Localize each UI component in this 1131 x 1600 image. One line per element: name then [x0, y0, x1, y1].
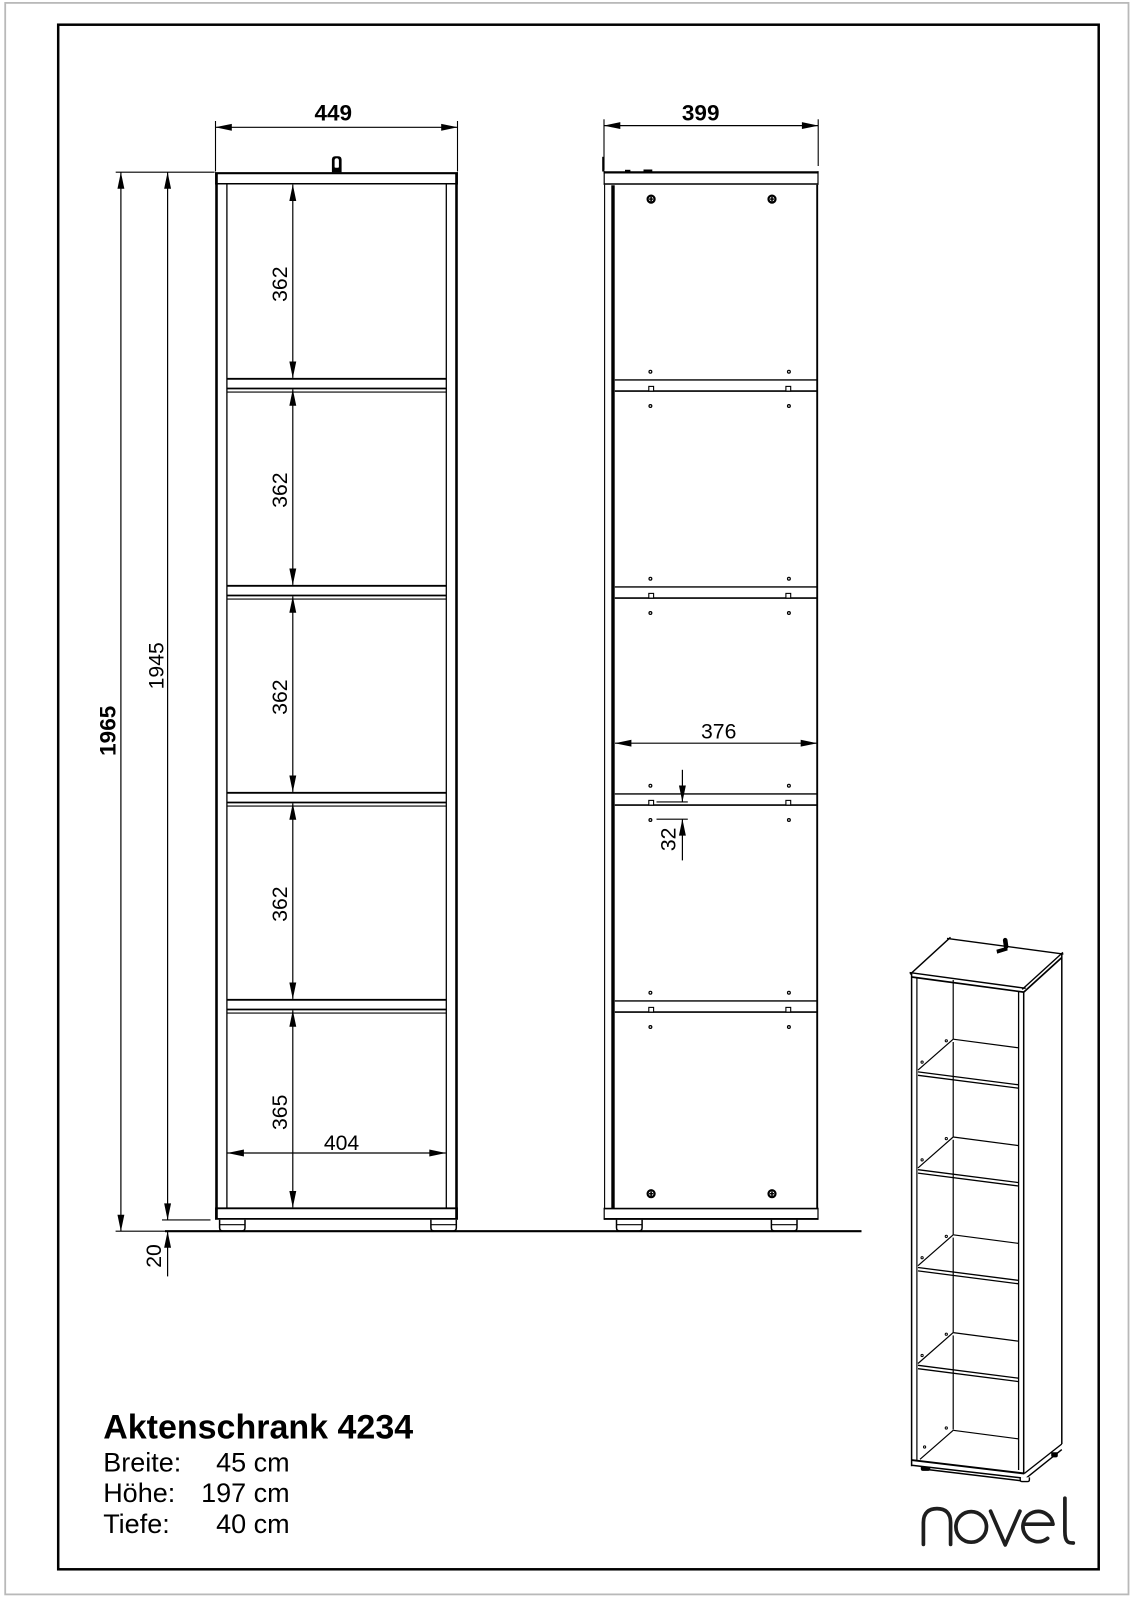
svg-text:20: 20 — [143, 1244, 166, 1268]
svg-text:cm: cm — [254, 1478, 290, 1508]
svg-text:32: 32 — [658, 828, 681, 852]
svg-text:Aktenschrank 4234: Aktenschrank 4234 — [103, 1408, 413, 1446]
svg-text:Breite:: Breite: — [103, 1448, 181, 1478]
svg-text:404: 404 — [324, 1132, 360, 1155]
svg-text:362: 362 — [269, 472, 292, 507]
svg-text:362: 362 — [269, 886, 292, 921]
svg-text:449: 449 — [315, 101, 353, 126]
svg-text:40: 40 — [216, 1509, 246, 1539]
svg-text:362: 362 — [269, 267, 292, 302]
svg-text:365: 365 — [269, 1095, 292, 1130]
svg-text:399: 399 — [682, 100, 720, 125]
svg-text:376: 376 — [701, 720, 736, 743]
svg-text:1945: 1945 — [146, 642, 169, 689]
svg-text:1965: 1965 — [96, 706, 121, 756]
svg-text:362: 362 — [269, 679, 292, 714]
svg-text:197: 197 — [201, 1478, 246, 1508]
svg-text:cm: cm — [254, 1509, 290, 1539]
svg-text:45: 45 — [216, 1448, 246, 1478]
svg-text:Tiefe:: Tiefe: — [103, 1509, 170, 1539]
svg-text:cm: cm — [254, 1448, 290, 1478]
svg-text:Höhe:: Höhe: — [103, 1478, 175, 1508]
